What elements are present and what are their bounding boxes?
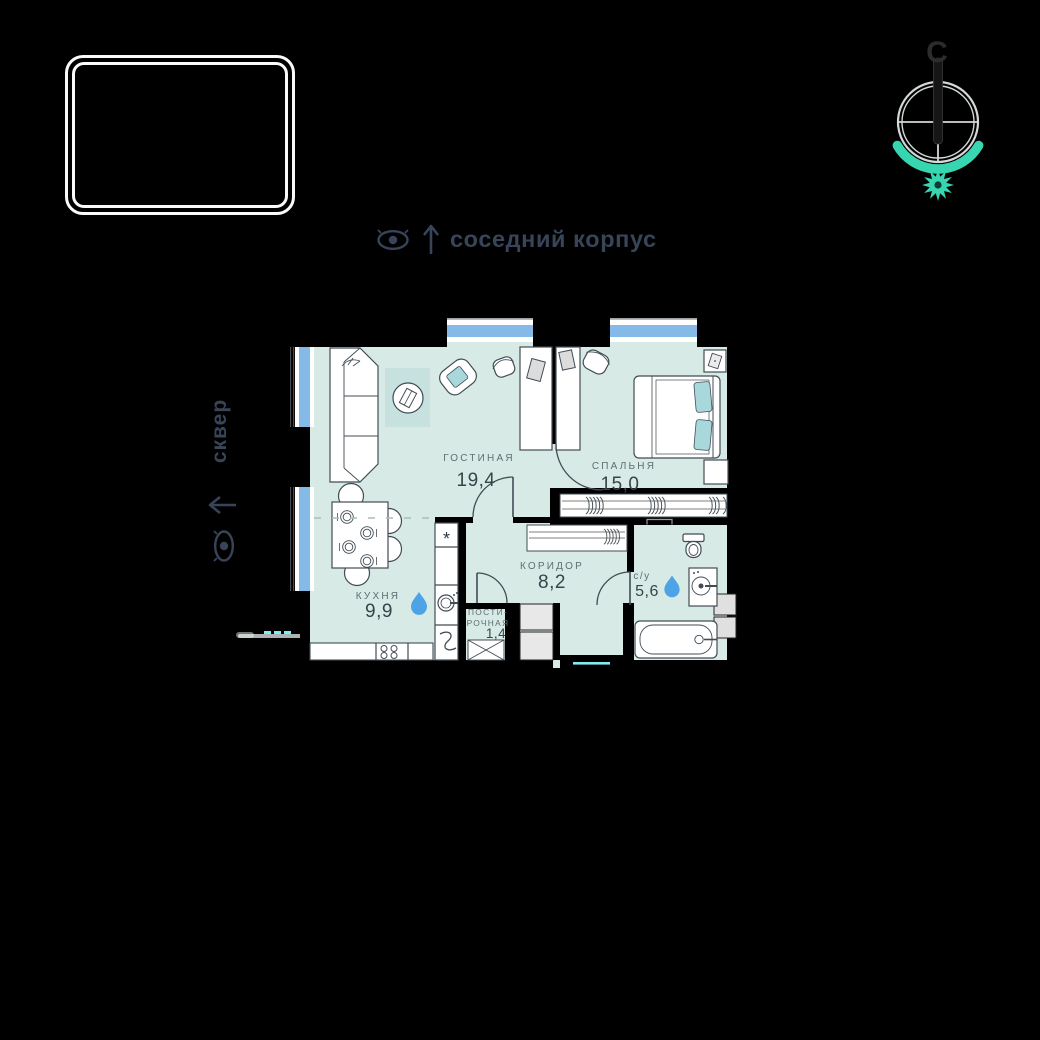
entrance-cabinets bbox=[520, 604, 553, 660]
compass-needle bbox=[934, 58, 943, 144]
room-area-laundry: 1,4 bbox=[486, 626, 506, 641]
wardrobe-corridor bbox=[527, 525, 627, 551]
room-area-living: 19,4 bbox=[457, 470, 496, 491]
wardrobe-bedroom bbox=[560, 494, 727, 517]
pillow bbox=[694, 419, 713, 450]
sofa bbox=[330, 348, 378, 482]
neighbor-label: соседний корпус bbox=[450, 226, 657, 253]
room-area-corridor: 8,2 bbox=[538, 572, 566, 593]
room-label-corridor: КОРИДОР bbox=[520, 561, 584, 572]
fridge-star: * bbox=[443, 529, 450, 549]
park-label: сквер bbox=[208, 391, 234, 471]
sun-icon bbox=[922, 169, 954, 201]
coffee-table bbox=[393, 383, 423, 413]
floor-plan: * bbox=[290, 314, 738, 674]
building-outline bbox=[65, 55, 295, 215]
room-label-living: ГОСТИНАЯ bbox=[443, 453, 515, 464]
bed bbox=[634, 376, 720, 458]
bedroom-chest bbox=[704, 460, 728, 484]
kitchen-counter-column: * bbox=[435, 523, 458, 660]
vanity-sink bbox=[689, 568, 717, 606]
page: { "canvas": {"width": 1040, "height": 10… bbox=[0, 0, 1040, 1040]
eye-icon bbox=[374, 225, 412, 253]
eye-icon bbox=[209, 527, 237, 565]
window-top-bedroom bbox=[610, 318, 697, 342]
room-label-bedroom: СПАЛЬНЯ bbox=[592, 461, 656, 472]
entrance-threshold bbox=[573, 662, 610, 665]
bathtub bbox=[635, 621, 717, 658]
compass: С bbox=[878, 28, 1000, 210]
pillow bbox=[694, 381, 713, 412]
nightstand bbox=[704, 350, 726, 372]
window-top-living bbox=[447, 318, 533, 342]
tv-unit-living bbox=[520, 347, 552, 450]
arrow-left-icon bbox=[206, 494, 240, 516]
window-left-living bbox=[290, 347, 314, 427]
room-area-bathroom: 5,6 bbox=[635, 583, 659, 600]
park-eye bbox=[209, 527, 237, 565]
tv-unit-bedroom bbox=[556, 347, 580, 450]
room-label-laundry-1: ПОСТИ- bbox=[468, 607, 508, 617]
room-area-kitchen: 9,9 bbox=[365, 601, 393, 622]
compass-north-letter: С bbox=[926, 36, 948, 69]
arrow-up-icon bbox=[421, 221, 441, 257]
washing-machine bbox=[468, 640, 504, 660]
room-area-bedroom: 15,0 bbox=[601, 474, 640, 495]
window-left-kitchen bbox=[290, 487, 314, 591]
neighbor-direction-note: соседний корпус bbox=[374, 220, 657, 258]
building-outline-inner bbox=[72, 62, 288, 208]
kitchen-counter-bottom bbox=[310, 643, 433, 660]
room-label-bathroom: с/у bbox=[633, 571, 650, 582]
